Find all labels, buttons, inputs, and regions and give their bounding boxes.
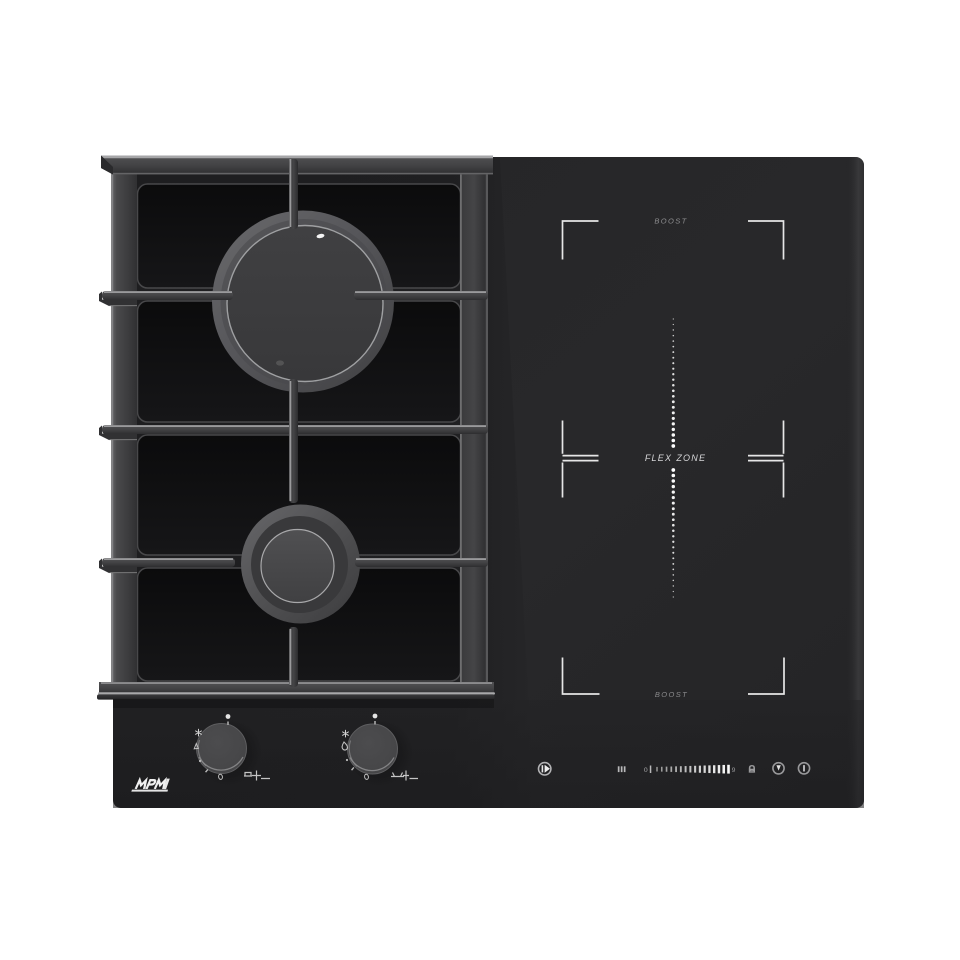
svg-text:BOOST: BOOST — [655, 690, 688, 699]
svg-text:9: 9 — [732, 767, 736, 774]
svg-text:FLEX ZONE: FLEX ZONE — [645, 453, 706, 463]
svg-text:BOOST: BOOST — [654, 217, 687, 226]
svg-text:0: 0 — [644, 767, 648, 774]
